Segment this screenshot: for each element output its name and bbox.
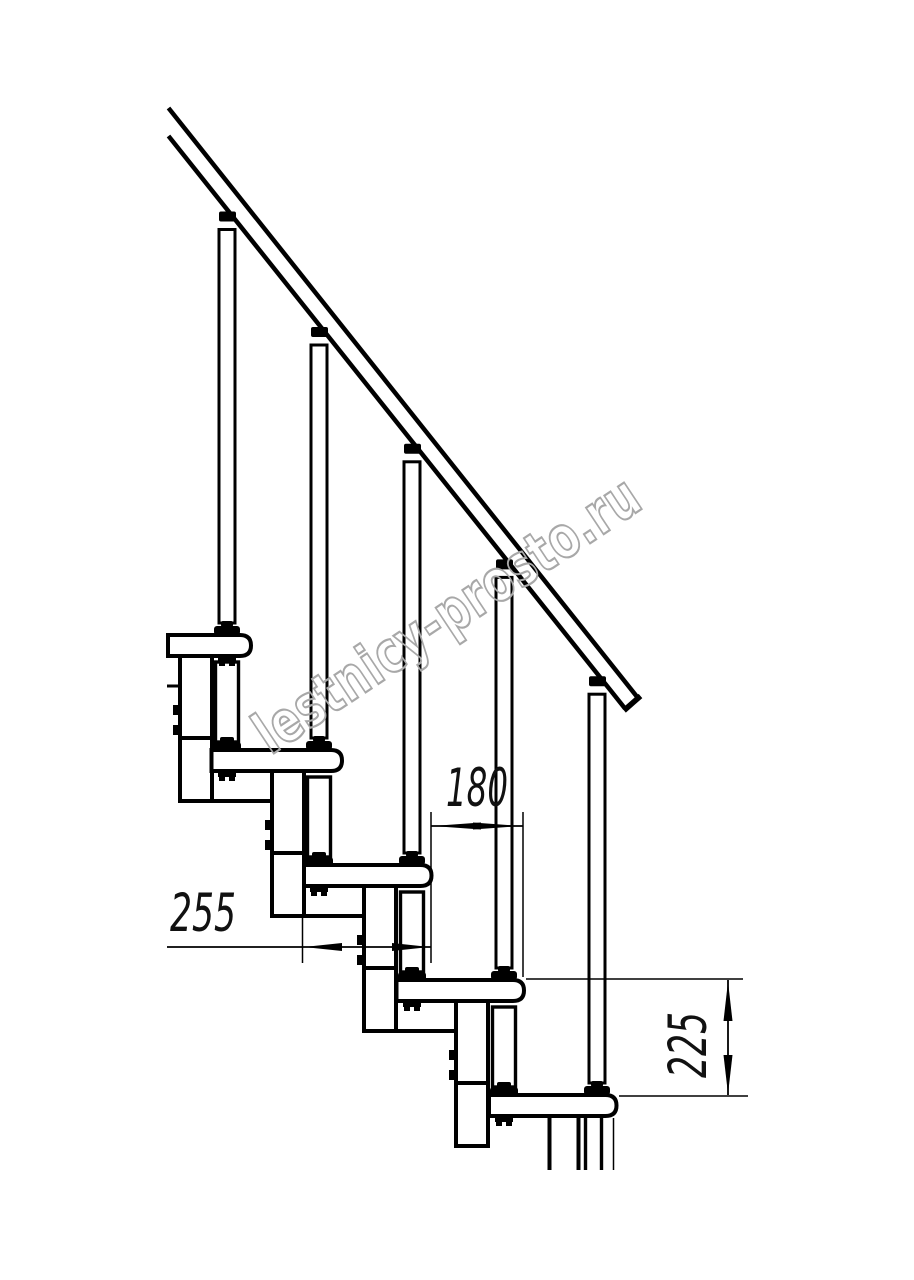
dimension-225: 225 — [526, 979, 748, 1096]
arrow-down — [724, 1055, 733, 1094]
dimension-225-label: 225 — [658, 1012, 719, 1078]
arrow-left — [304, 943, 342, 951]
arrow-up — [724, 982, 733, 1022]
staircase-side-view-drawing: 255 180 225 lestnicy-prosto.ru — [0, 0, 914, 1280]
handrail-end-cap — [624, 696, 641, 711]
staircase-drawing-page: 255 180 225 lestnicy-prosto.ru — [0, 0, 914, 1280]
dimension-255-label: 255 — [170, 883, 236, 944]
dimension-180-label: 180 — [446, 758, 508, 819]
